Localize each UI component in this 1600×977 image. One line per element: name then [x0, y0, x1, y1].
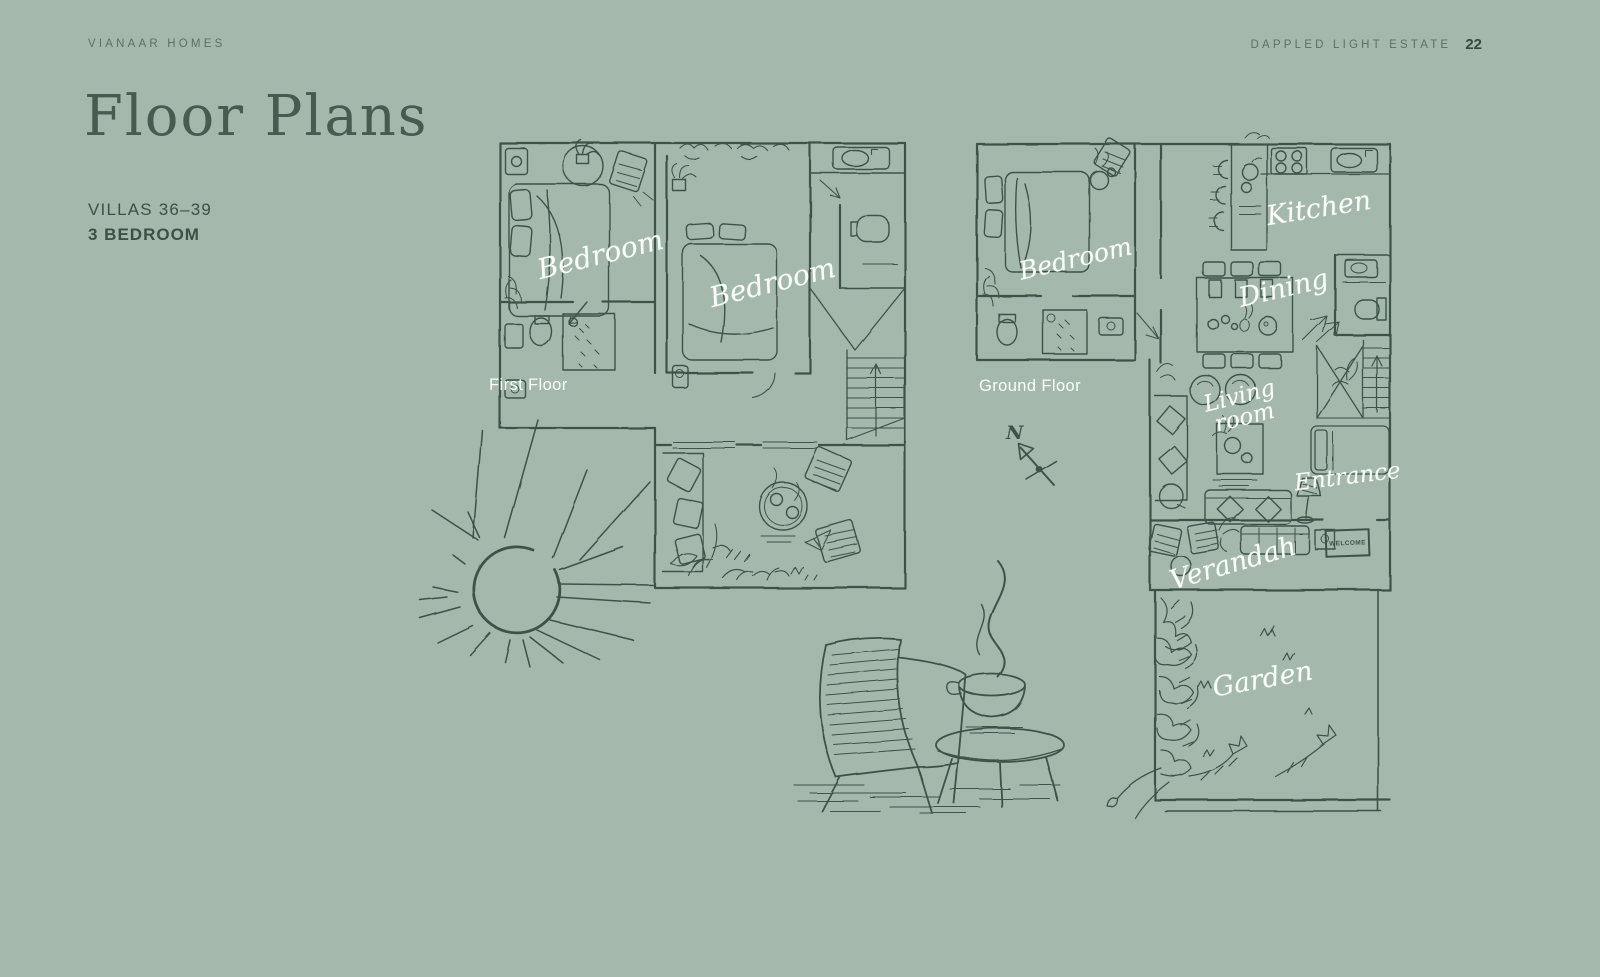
- bedroom-count: 3 BEDROOM: [88, 225, 212, 245]
- first-floor-label: First Floor: [489, 376, 568, 395]
- compass: N: [990, 415, 1080, 505]
- subtitle-block: VILLAS 36–39 3 BEDROOM: [88, 200, 212, 245]
- welcome-doormat: WELCOME: [1325, 528, 1371, 558]
- ground-floor-label: Ground Floor: [979, 377, 1081, 396]
- villas-range: VILLAS 36–39: [88, 200, 212, 220]
- compass-north-label: N: [1005, 422, 1024, 444]
- estate-name: DAPPLED LIGHT ESTATE: [1251, 39, 1452, 51]
- doormat-text: WELCOME: [1329, 539, 1366, 547]
- brochure-page: VIANAAR HOMES DAPPLED LIGHT ESTATE 22 Fl…: [0, 0, 1600, 977]
- page-number: 22: [1465, 36, 1482, 53]
- first-floor-plan-drawing: [475, 128, 920, 598]
- page-title: Floor Plans: [84, 84, 429, 149]
- brand-name: VIANAAR HOMES: [88, 38, 225, 50]
- header-right: DAPPLED LIGHT ESTATE 22: [1251, 36, 1482, 53]
- armchair-vignette: [770, 545, 1070, 815]
